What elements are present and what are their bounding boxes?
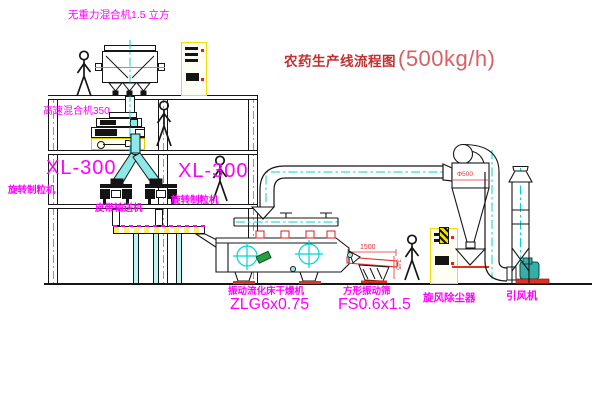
exhaust-duct xyxy=(260,164,452,207)
label-high-speed-mixer: 高速混合机350 xyxy=(43,107,110,117)
label-belt-conveyor: 皮带输送机 xyxy=(95,204,143,214)
fluid-bed-dryer xyxy=(216,207,349,284)
label-screen-model: FS0.6x1.5 xyxy=(338,297,411,313)
weightless-mixer-shaft xyxy=(95,67,165,69)
dim-screen-height: 345 xyxy=(394,259,401,270)
dryer-support xyxy=(300,272,318,281)
screen-feed-valve xyxy=(348,253,353,258)
manifold-funnel xyxy=(252,207,274,219)
label-granulator-model-left: XL-300 xyxy=(46,158,117,178)
label-granulator-name-left: 旋转制粒机 xyxy=(8,186,56,196)
label-fan: 引风机 xyxy=(506,291,538,302)
dim-cyclone-diameter: Φ500 xyxy=(457,172,473,179)
label-cyclone: 旋风除尘器 xyxy=(423,293,476,304)
diagram-title-text: 农药生产线流程图 xyxy=(284,50,396,70)
label-granulator-name-right: 旋转制粒机 xyxy=(171,196,219,206)
label-weightless-mixer: 无重力混合机1.5 立方 xyxy=(68,10,170,21)
person-figure xyxy=(405,235,419,280)
diagram-title: 农药生产线流程图 (500kg/h) xyxy=(284,46,495,72)
dryer-support xyxy=(235,272,252,281)
dim-screen-length: 1500 xyxy=(360,244,376,251)
pesticide-line-flow-diagram: 农药生产线流程图 (500kg/h) xyxy=(0,0,600,403)
diagram-title-capacity: (500kg/h) xyxy=(398,46,495,72)
dryer-drain-valve xyxy=(290,266,295,271)
person-figure xyxy=(157,101,171,146)
screen-base-pad xyxy=(361,281,387,284)
label-dryer-model: ZLG6x0.75 xyxy=(230,297,309,313)
person-figure xyxy=(77,51,91,96)
induced-draft-fan-body xyxy=(507,258,549,284)
y-chute xyxy=(111,134,162,185)
label-granulator-model-right: XL-300 xyxy=(178,161,249,181)
